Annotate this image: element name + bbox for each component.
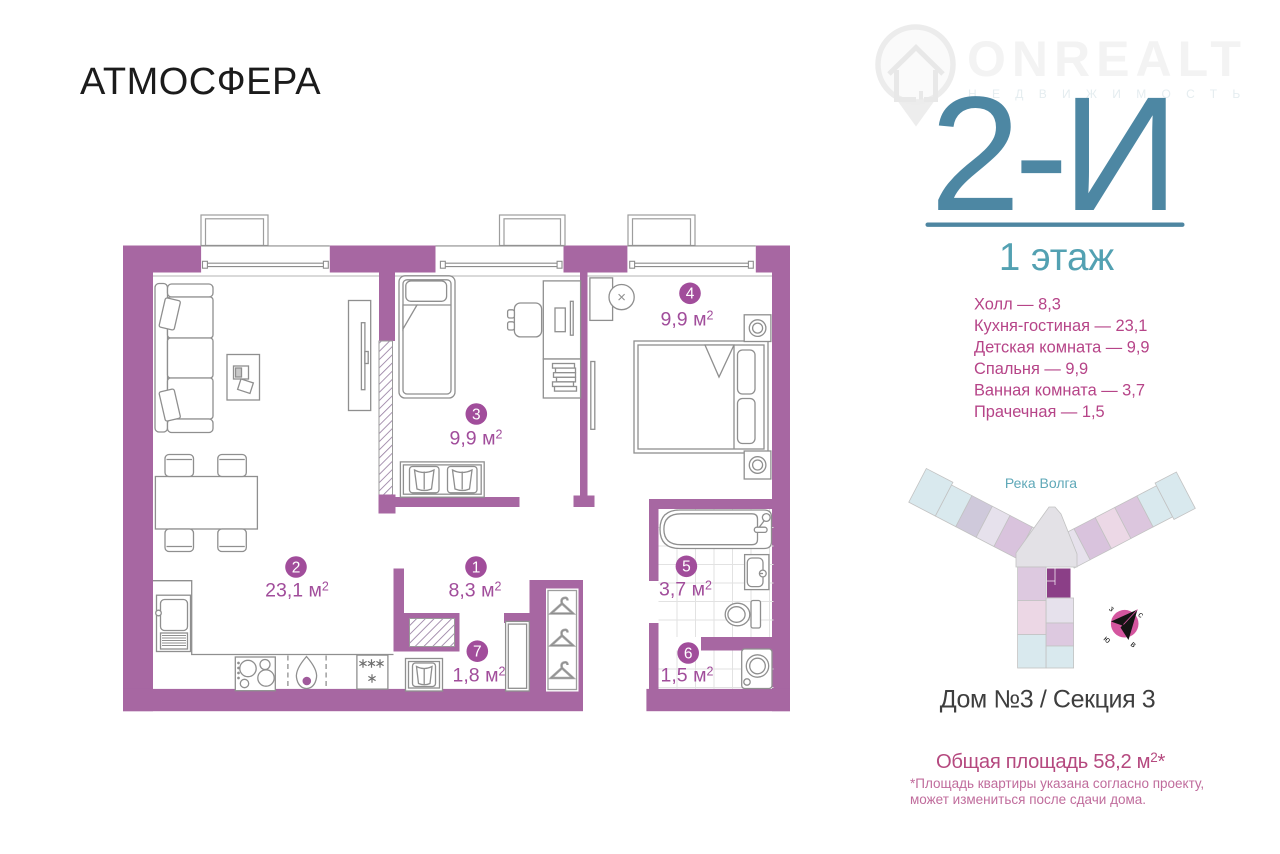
svg-text:3: 3 xyxy=(472,406,481,423)
svg-text:Прачечная — 1,5: Прачечная — 1,5 xyxy=(974,403,1105,421)
svg-text:7: 7 xyxy=(473,644,482,661)
svg-text:9,9 м2: 9,9 м2 xyxy=(450,428,503,450)
svg-text:Кухня-гостиная — 23,1: Кухня-гостиная — 23,1 xyxy=(974,317,1147,335)
svg-text:3,7 м2: 3,7 м2 xyxy=(659,579,712,601)
svg-text:6: 6 xyxy=(684,645,693,662)
svg-text:может измениться после сдачи д: может измениться после сдачи дома. xyxy=(910,792,1146,807)
svg-text:Общая площадь 58,2 м2*: Общая площадь 58,2 м2* xyxy=(936,750,1166,773)
svg-text:Река Волга: Река Волга xyxy=(1005,475,1077,491)
svg-text:*Площадь квартиры указана согл: *Площадь квартиры указана согласно проек… xyxy=(910,776,1204,791)
svg-text:2-И: 2-И xyxy=(930,62,1173,245)
svg-text:Дом №3 / Секция 3: Дом №3 / Секция 3 xyxy=(940,686,1156,714)
svg-text:1,8 м2: 1,8 м2 xyxy=(453,665,506,687)
svg-text:Детская комната — 9,9: Детская комната — 9,9 xyxy=(974,339,1150,357)
svg-text:4: 4 xyxy=(686,286,695,303)
svg-text:1 этаж: 1 этаж xyxy=(999,236,1115,279)
svg-text:АТМОСФЕРА: АТМОСФЕРА xyxy=(80,61,321,103)
svg-text:Спальня — 9,9: Спальня — 9,9 xyxy=(974,360,1088,378)
svg-text:23,1 м2: 23,1 м2 xyxy=(265,580,329,602)
svg-text:1: 1 xyxy=(472,559,481,576)
svg-text:8,3 м2: 8,3 м2 xyxy=(449,580,502,602)
svg-text:Ванная комната — 3,7: Ванная комната — 3,7 xyxy=(974,382,1145,400)
svg-text:1,5 м2: 1,5 м2 xyxy=(661,665,714,687)
svg-text:9,9 м2: 9,9 м2 xyxy=(661,309,714,331)
svg-text:5: 5 xyxy=(682,559,691,576)
svg-text:2: 2 xyxy=(292,559,301,576)
svg-text:Холл — 8,3: Холл — 8,3 xyxy=(974,296,1061,314)
